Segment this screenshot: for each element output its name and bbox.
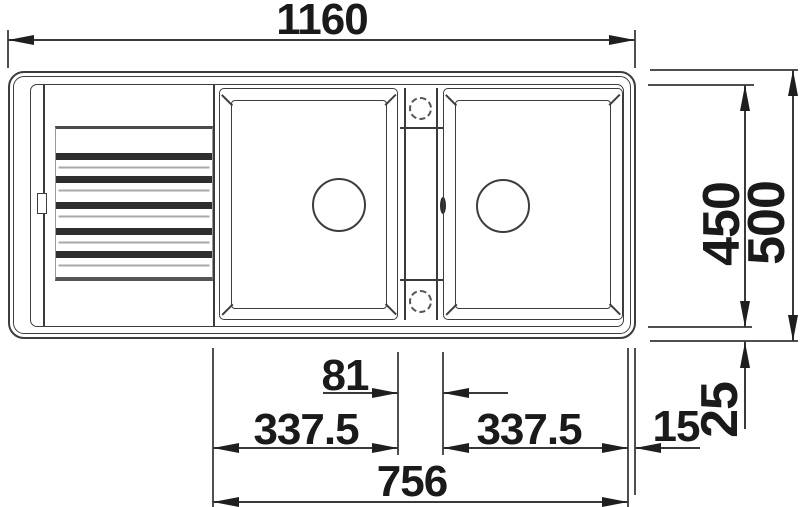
- dim-arrow: [602, 497, 628, 507]
- dim-arrow: [213, 497, 239, 507]
- ext-line-sink-right: [634, 348, 636, 495]
- ext-line-divider-right: [442, 352, 444, 455]
- drainboard-rib: [56, 251, 212, 258]
- ext-line-inner-depth-top: [648, 84, 754, 86]
- dim-arrow: [788, 70, 798, 96]
- dim-label-overall-width: 1160: [276, 0, 367, 42]
- ext-line-depth-bottom: [650, 340, 798, 342]
- dim-label-span-left: 337.5: [253, 408, 358, 452]
- dim-arrow: [8, 35, 34, 45]
- dim-arrow: [740, 301, 750, 327]
- ext-line-divider-left: [397, 352, 399, 455]
- divider-lower-line: [400, 279, 443, 281]
- ext-line-bowls-right: [627, 348, 629, 507]
- drainboard-rib: [56, 228, 212, 235]
- ext-line-bowls-left: [212, 348, 214, 507]
- tap-hole-bottom: [409, 290, 432, 313]
- ext-line-inner-depth-bottom: [648, 326, 752, 328]
- dim-arrow: [602, 443, 628, 453]
- drainboard-rib: [56, 153, 212, 160]
- dim-arrow: [213, 443, 239, 453]
- dim-arrow: [372, 388, 398, 398]
- dim-label-center-spacing: 81: [322, 354, 369, 398]
- right-bowl-drain: [476, 179, 530, 233]
- divider-left-inner-line: [404, 88, 406, 320]
- dim-arrow: [372, 443, 398, 453]
- drainboard-rib-panel: [55, 126, 213, 281]
- dim-arrow: [443, 443, 469, 453]
- dim-label-span-right: 337.5: [476, 408, 581, 452]
- drainboard-rib: [56, 202, 212, 209]
- dim-label-overall-depth: 500: [741, 181, 793, 265]
- dim-label-bowl-section: 756: [377, 460, 447, 504]
- dim-arrow: [740, 85, 750, 111]
- divider-upper-line: [400, 127, 443, 129]
- drainboard-edge-tab: [37, 193, 47, 214]
- dim-arrow: [609, 35, 635, 45]
- dim-arrow: [788, 315, 798, 341]
- technical-drawing: 1160 450 500 25 81 337.5 337.5 15 756: [0, 0, 800, 507]
- left-bowl-drain: [312, 178, 366, 232]
- ext-line-depth-top: [650, 69, 798, 71]
- dim-label-right-rim: 15: [653, 405, 700, 449]
- bowl-section-left-line: [213, 85, 215, 326]
- dim-arrow: [443, 388, 469, 398]
- divider-right-inner-line: [436, 88, 438, 320]
- tap-hole-top: [409, 97, 432, 120]
- dim-arrow: [740, 342, 750, 368]
- drainboard-rib: [56, 176, 212, 183]
- dim-label-bottom-rim: 25: [694, 382, 746, 438]
